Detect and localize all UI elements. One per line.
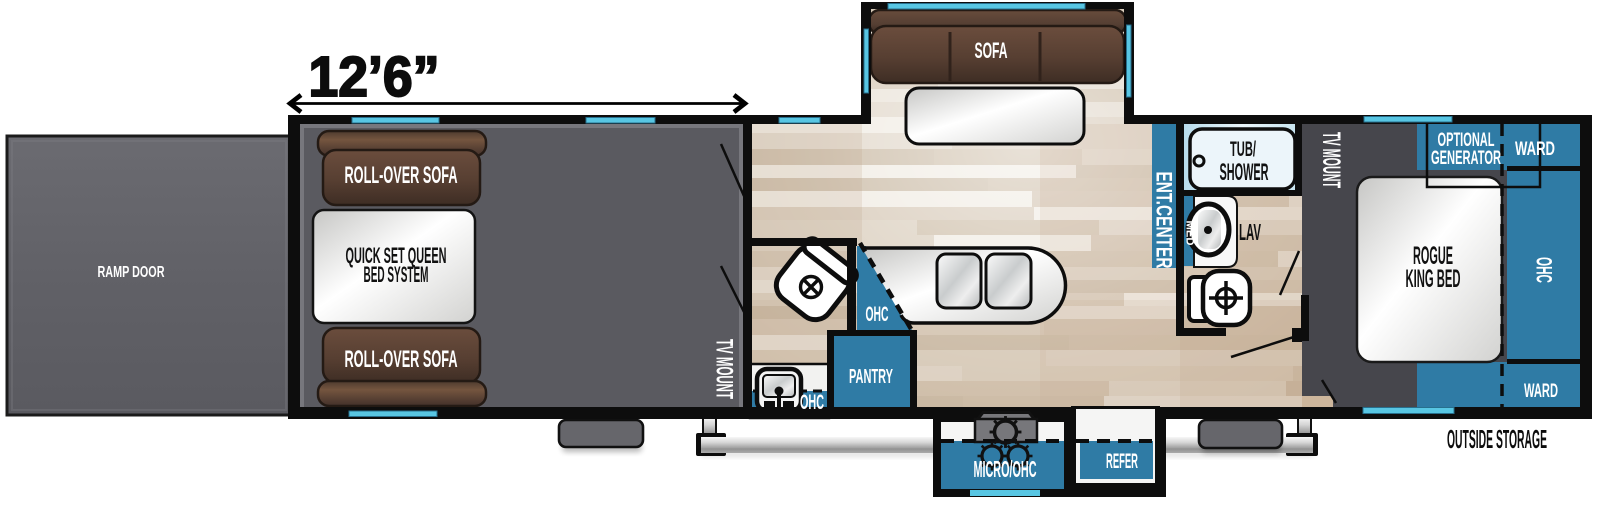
svg-text:MICRO/OHC: MICRO/OHC — [974, 456, 1037, 482]
svg-text:OHC: OHC — [866, 303, 889, 326]
svg-text:BED SYSTEM: BED SYSTEM — [364, 262, 429, 287]
svg-text:OHC: OHC — [1532, 257, 1557, 283]
svg-text:TV MOUNT: TV MOUNT — [1317, 132, 1345, 188]
svg-text:KING BED: KING BED — [1406, 265, 1461, 293]
svg-text:TV MOUNT: TV MOUNT — [711, 339, 738, 399]
svg-text:OHC: OHC — [800, 391, 824, 414]
svg-text:WARD: WARD — [1524, 381, 1558, 402]
svg-text:REFER: REFER — [1106, 450, 1138, 473]
svg-text:WARD: WARD — [1515, 139, 1555, 160]
svg-text:LAV: LAV — [1239, 219, 1261, 245]
svg-text:SHOWER: SHOWER — [1220, 159, 1269, 186]
svg-text:ENT.CENTER: ENT.CENTER — [1152, 172, 1177, 269]
svg-text:GENERATOR: GENERATOR — [1431, 148, 1501, 169]
svg-text:MED: MED — [1184, 221, 1196, 246]
svg-text:RAMP DOOR: RAMP DOOR — [98, 264, 165, 281]
svg-text:SOFA: SOFA — [975, 38, 1008, 63]
svg-text:TUB/: TUB/ — [1230, 138, 1256, 161]
svg-text:ROLL-OVER SOFA: ROLL-OVER SOFA — [345, 162, 458, 189]
svg-text:OUTSIDE STORAGE: OUTSIDE STORAGE — [1447, 424, 1547, 454]
svg-text:ROLL-OVER SOFA: ROLL-OVER SOFA — [345, 346, 458, 373]
svg-text:PANTRY: PANTRY — [849, 366, 893, 388]
svg-text:12’6”: 12’6” — [309, 45, 440, 109]
